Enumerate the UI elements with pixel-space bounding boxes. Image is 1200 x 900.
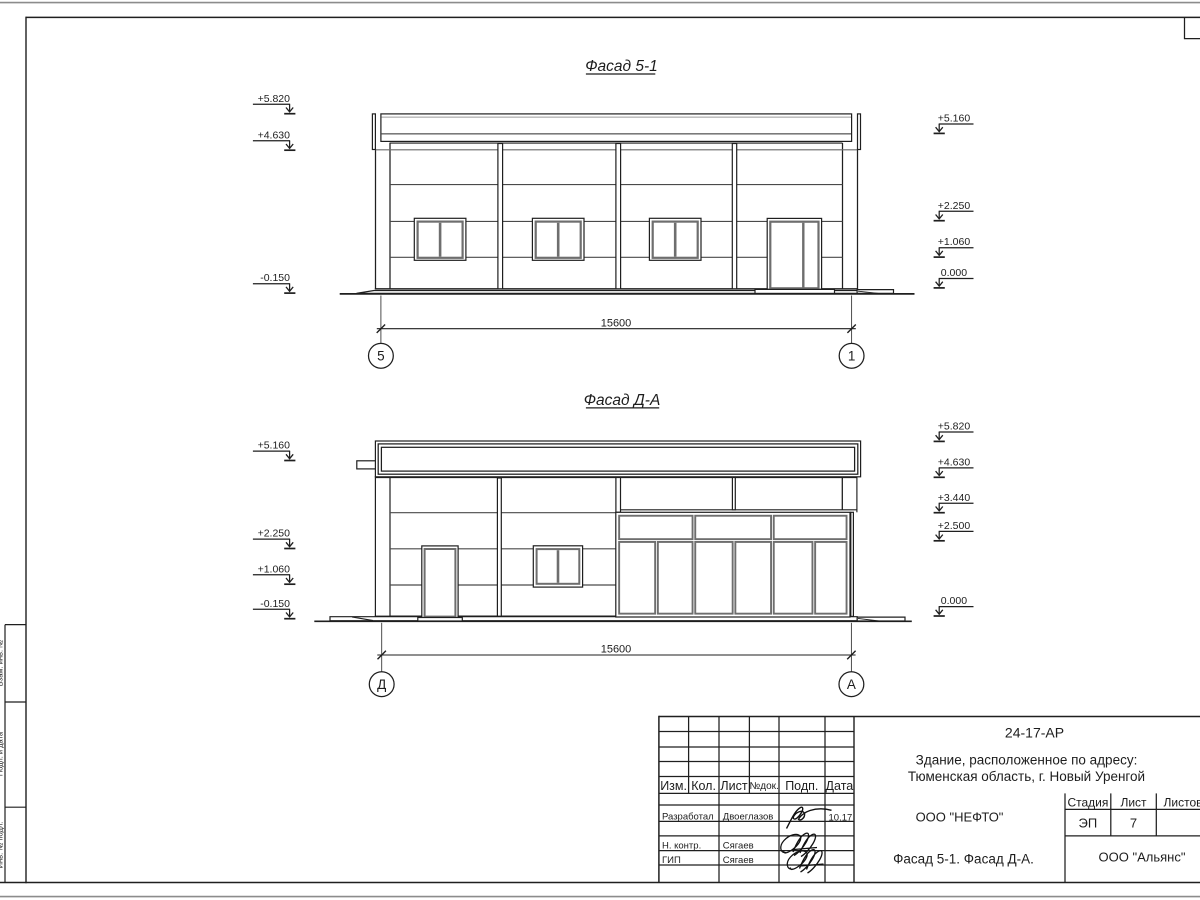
svg-text:-0.150: -0.150 — [260, 272, 290, 284]
svg-text:№док.: №док. — [750, 781, 779, 792]
svg-text:Фасад 5-1: Фасад 5-1 — [585, 58, 658, 75]
svg-text:-0.150: -0.150 — [260, 598, 290, 610]
svg-text:+5.820: +5.820 — [258, 93, 291, 105]
svg-text:Подп. и дата: Подп. и дата — [0, 731, 5, 776]
svg-text:15600: 15600 — [601, 317, 632, 329]
svg-text:7: 7 — [1130, 816, 1137, 831]
svg-text:Д: Д — [377, 677, 386, 692]
svg-text:Тюменская область, г. Новый Ур: Тюменская область, г. Новый Уренгой — [908, 769, 1145, 784]
svg-text:+5.820: +5.820 — [938, 421, 971, 433]
svg-text:Лист: Лист — [1120, 795, 1147, 809]
svg-text:Двоеглазов: Двоеглазов — [723, 812, 774, 823]
svg-text:+4.630: +4.630 — [258, 129, 291, 141]
svg-text:Взам. инв. №: Взам. инв. № — [0, 640, 5, 686]
svg-text:+1.060: +1.060 — [938, 236, 971, 248]
svg-text:Изм.: Изм. — [660, 779, 687, 793]
svg-text:ЭП: ЭП — [1079, 816, 1098, 831]
svg-text:Подп.: Подп. — [785, 779, 818, 793]
svg-text:24-17-АР: 24-17-АР — [1005, 725, 1064, 741]
svg-text:1: 1 — [848, 349, 856, 364]
svg-text:+2.500: +2.500 — [938, 520, 971, 532]
svg-text:Фасад 5-1. Фасад Д-А.: Фасад 5-1. Фасад Д-А. — [893, 852, 1034, 867]
svg-text:Дата: Дата — [826, 779, 854, 793]
svg-text:Инв. № подл.: Инв. № подл. — [0, 822, 5, 869]
svg-text:Листов: Листов — [1164, 795, 1200, 809]
svg-text:Сягаев: Сягаев — [723, 855, 754, 866]
svg-text:+3.440: +3.440 — [938, 492, 971, 504]
svg-text:А: А — [847, 677, 856, 692]
svg-text:Кол.: Кол. — [691, 779, 716, 793]
svg-text:Н. контр.: Н. контр. — [662, 841, 701, 852]
svg-text:+5.160: +5.160 — [258, 440, 291, 452]
svg-text:Здание, расположенное по адрес: Здание, расположенное по адресу: — [916, 753, 1138, 768]
svg-text:Сягаев: Сягаев — [723, 841, 754, 852]
svg-text:5: 5 — [377, 349, 385, 364]
svg-text:+2.250: +2.250 — [938, 200, 971, 212]
svg-text:ООО "НЕФТО": ООО "НЕФТО" — [916, 810, 1004, 825]
svg-text:0.000: 0.000 — [941, 595, 967, 607]
svg-text:+4.630: +4.630 — [938, 456, 971, 468]
svg-text:Лист: Лист — [720, 779, 747, 793]
svg-text:+1.060: +1.060 — [258, 563, 291, 575]
svg-text:+2.250: +2.250 — [258, 528, 291, 540]
svg-text:Стадия: Стадия — [1067, 795, 1108, 809]
svg-text:10.17: 10.17 — [829, 813, 853, 824]
svg-text:+5.160: +5.160 — [938, 113, 971, 125]
svg-text:0.000: 0.000 — [941, 267, 967, 279]
svg-text:Разработал: Разработал — [662, 812, 714, 823]
svg-text:ООО "Альянс": ООО "Альянс" — [1099, 850, 1186, 865]
svg-text:ГИП: ГИП — [662, 855, 681, 866]
svg-text:Фасад Д-А: Фасад Д-А — [584, 392, 661, 409]
svg-text:15600: 15600 — [601, 644, 632, 656]
